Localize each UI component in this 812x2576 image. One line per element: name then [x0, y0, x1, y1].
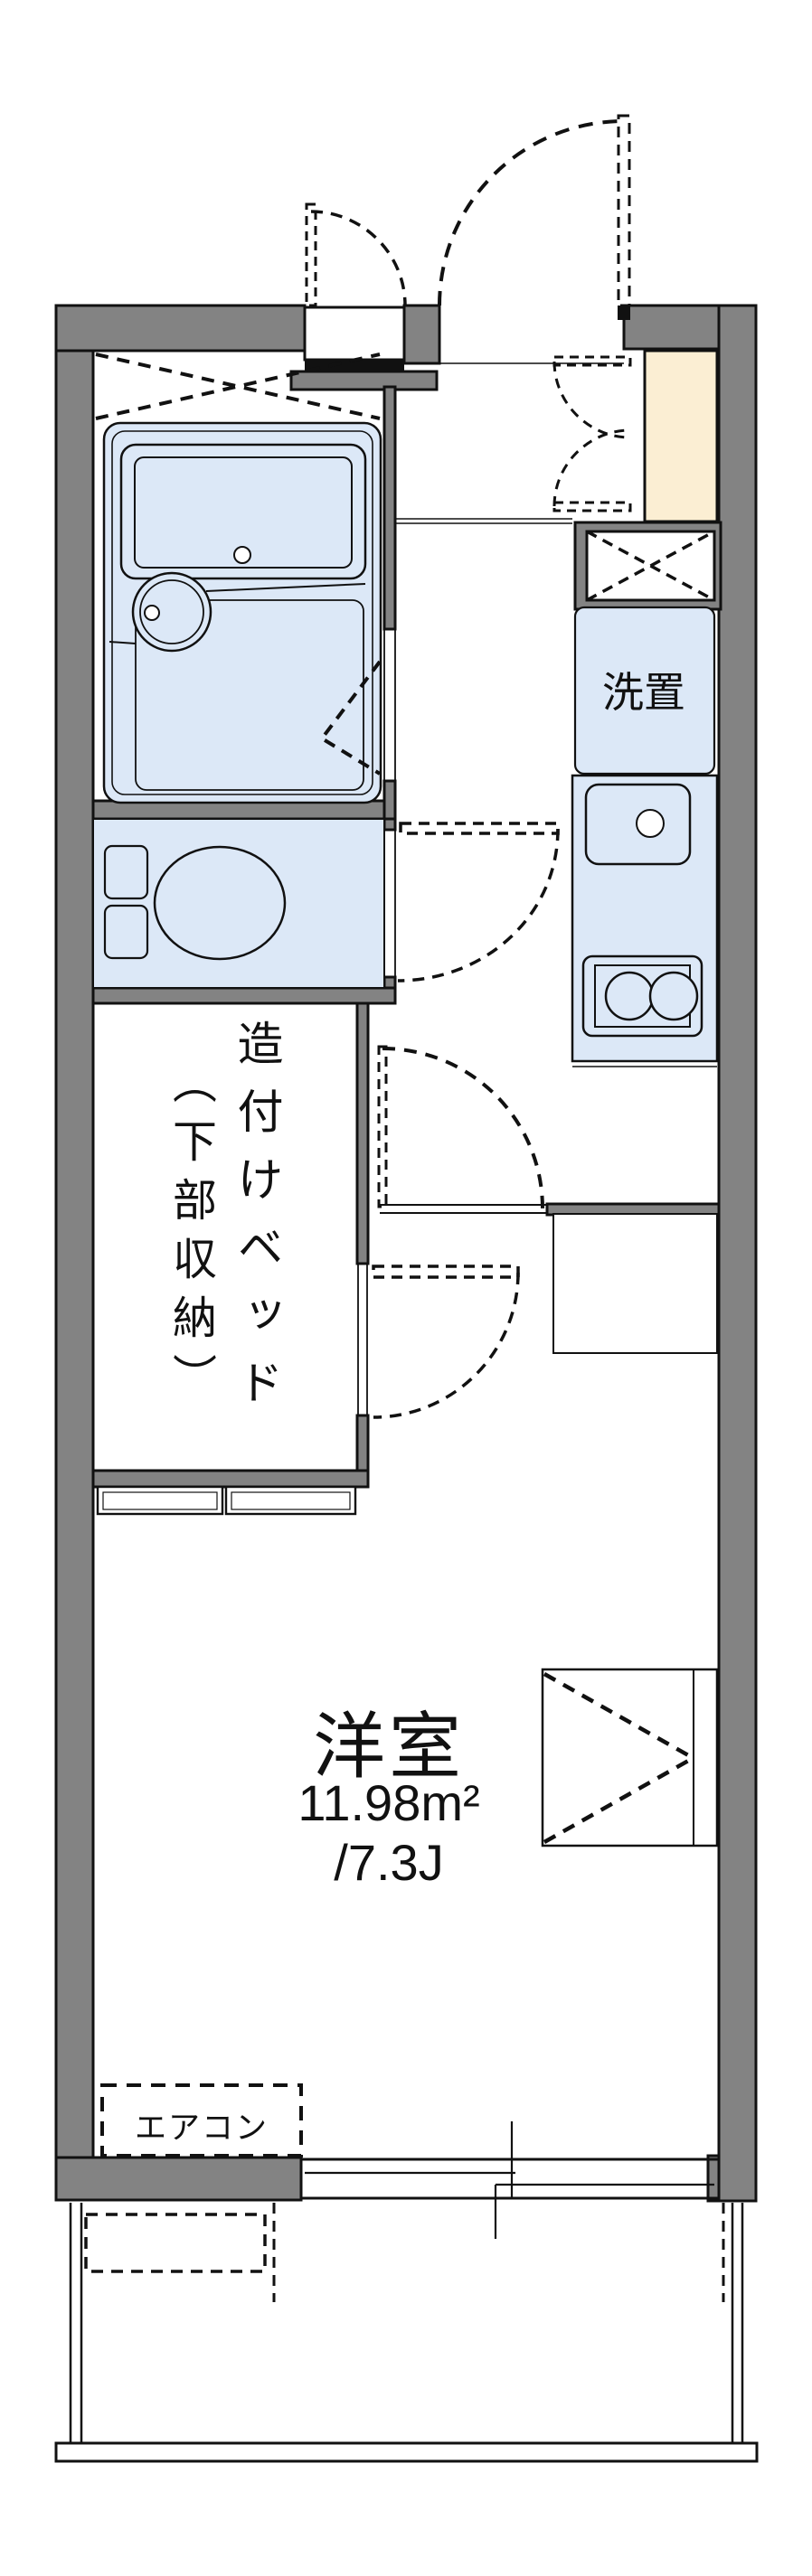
- washbasin-faucet: [145, 606, 159, 620]
- entrance-storage: [554, 351, 721, 609]
- entrance-niche: [305, 307, 404, 360]
- bed-door-leaf: [373, 1266, 518, 1277]
- bed-storage-boxes: [98, 1487, 355, 1514]
- corridor-door-leaf: [379, 1047, 386, 1207]
- shoe-cabinet: [645, 351, 717, 522]
- floor-plan-drawing: .wall{fill:#838383;stroke:#111;stroke-wi…: [0, 0, 812, 2576]
- stove-burner-right: [650, 973, 697, 1020]
- trunk-door-leaf: [307, 204, 316, 306]
- bathroom: [96, 354, 381, 803]
- toilet-tank: [105, 846, 147, 898]
- bed-closet-door: [373, 1266, 518, 1417]
- stove-burner-left: [606, 973, 653, 1020]
- toilet-room: [93, 819, 558, 988]
- toilet-door-swing-arc: [398, 829, 558, 981]
- bed-label-main: 造付けベッド: [222, 1020, 289, 1471]
- room-tatami-label: /7.3J: [271, 1833, 506, 1892]
- kitchen: [572, 776, 717, 1067]
- room-area-label: 11.98m²: [271, 1773, 506, 1832]
- corridor-door-swing-arc: [382, 1048, 543, 1208]
- balcony-dashed-area: [86, 2214, 265, 2271]
- washer-label: 洗置: [581, 660, 707, 719]
- bed-label-sub: （下部収納）: [159, 1059, 223, 1457]
- bathtub-drain: [234, 547, 250, 563]
- toilet-bowl: [155, 847, 285, 959]
- balcony: [56, 2203, 757, 2461]
- aircon-label: エアコン: [102, 2102, 301, 2148]
- closet: [543, 1669, 717, 1846]
- bed-door-swing-arc: [373, 1273, 518, 1417]
- trunk-door-swing-arc: [311, 212, 405, 306]
- floor-plan: .wall{fill:#838383;stroke:#111;stroke-wi…: [0, 0, 812, 2576]
- balcony-railing: [56, 2443, 757, 2461]
- cabinet-door-leaf-bottom: [554, 503, 630, 511]
- closet-box: [543, 1669, 717, 1846]
- sliding-window: [301, 2121, 719, 2239]
- entrance-door: [439, 116, 630, 320]
- entrance-door-swing-arc: [439, 121, 624, 306]
- sink-faucet: [637, 810, 664, 837]
- refrigerator-nook: [553, 1214, 717, 1353]
- toilet-door-leaf: [401, 823, 558, 833]
- trunk-room-door: [307, 204, 405, 306]
- entrance-door-leaf: [618, 116, 629, 306]
- corridor-door: [379, 1047, 543, 1208]
